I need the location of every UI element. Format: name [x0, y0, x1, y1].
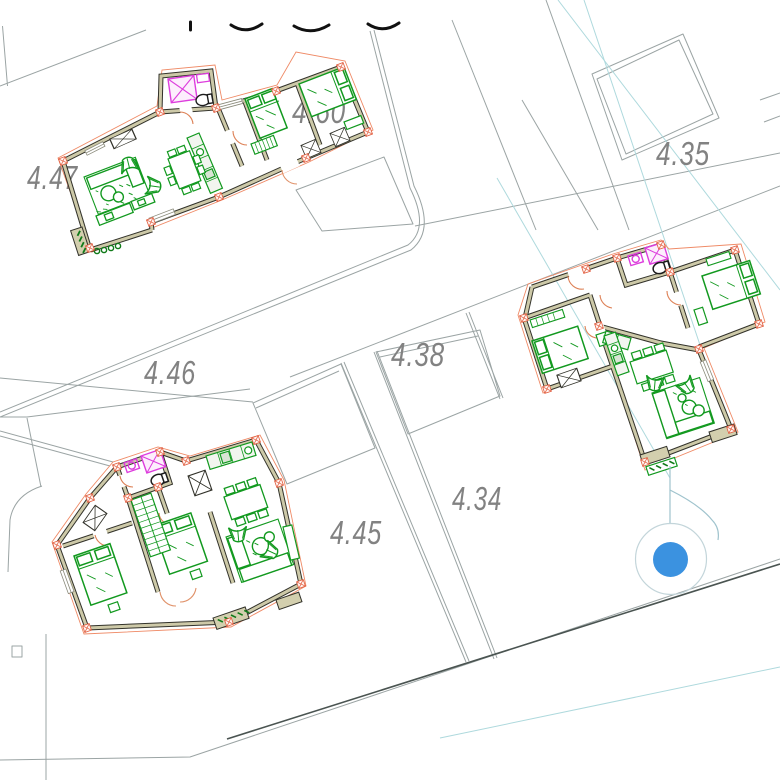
svg-text:4.46: 4.46 [144, 354, 196, 391]
svg-text:4.45: 4.45 [330, 514, 382, 551]
svg-text:4.38: 4.38 [391, 336, 445, 373]
svg-text:4.35: 4.35 [656, 135, 710, 172]
svg-text:4.34: 4.34 [452, 480, 502, 517]
